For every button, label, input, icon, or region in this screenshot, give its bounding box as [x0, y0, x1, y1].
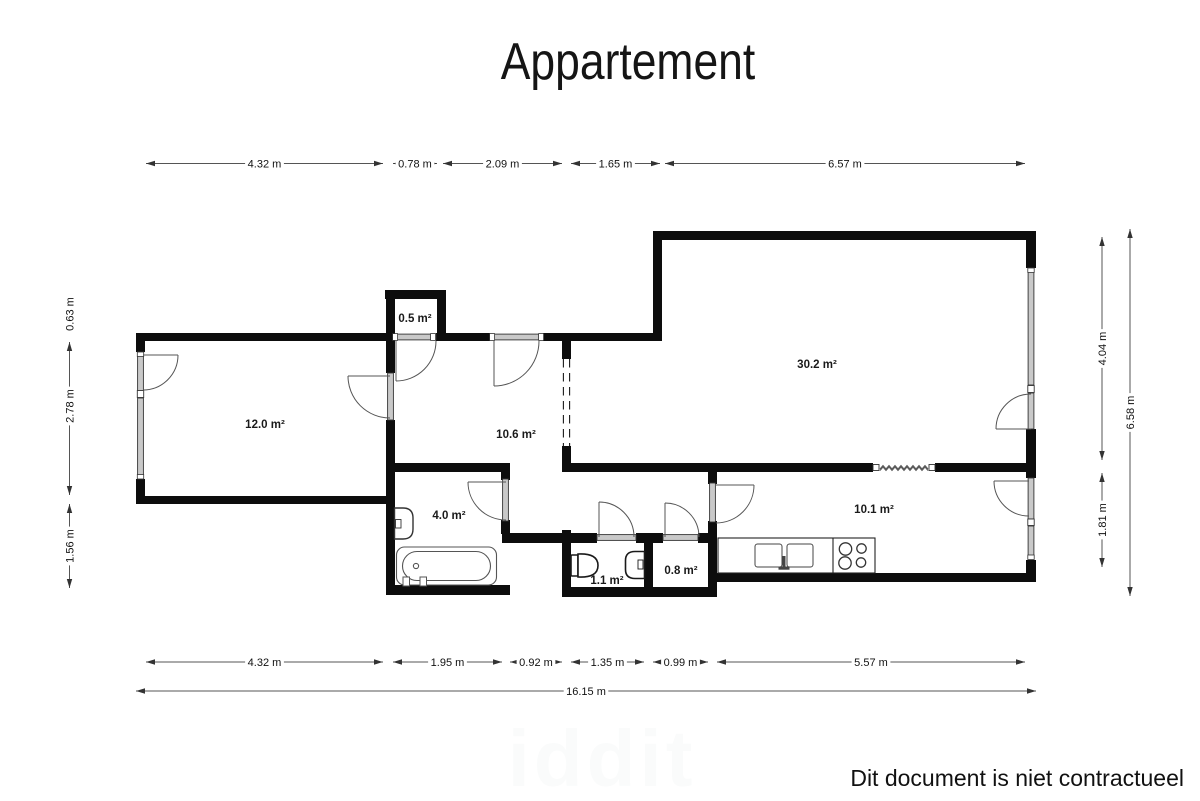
svg-text:Appartement: Appartement — [501, 33, 756, 91]
svg-text:Dit document is niet contractu: Dit document is niet contractueel — [850, 765, 1184, 791]
svg-text:16.15 m: 16.15 m — [566, 686, 606, 698]
svg-text:2.78 m: 2.78 m — [65, 389, 77, 423]
svg-text:0.99 m: 0.99 m — [664, 657, 698, 669]
svg-text:0.63 m: 0.63 m — [65, 297, 77, 331]
svg-text:2.09 m: 2.09 m — [486, 159, 520, 171]
svg-text:12.0 m²: 12.0 m² — [245, 419, 285, 431]
svg-text:0.92 m: 0.92 m — [519, 657, 553, 669]
svg-text:0.8 m²: 0.8 m² — [664, 565, 697, 577]
svg-text:1.56 m: 1.56 m — [65, 529, 77, 563]
svg-text:30.2 m²: 30.2 m² — [797, 359, 837, 371]
svg-text:0.5 m²: 0.5 m² — [398, 313, 431, 325]
svg-text:iddit: iddit — [508, 714, 697, 801]
svg-text:4.32 m: 4.32 m — [248, 159, 282, 171]
svg-text:1.95 m: 1.95 m — [431, 657, 465, 669]
svg-text:6.57 m: 6.57 m — [828, 159, 862, 171]
svg-text:1.35 m: 1.35 m — [591, 657, 625, 669]
svg-text:5.57 m: 5.57 m — [854, 657, 888, 669]
svg-text:10.6 m²: 10.6 m² — [496, 429, 536, 441]
svg-text:1.1 m²: 1.1 m² — [590, 575, 623, 587]
svg-text:0.78 m: 0.78 m — [398, 159, 432, 171]
svg-text:1.81 m: 1.81 m — [1097, 503, 1109, 537]
svg-text:4.04 m: 4.04 m — [1097, 332, 1109, 366]
svg-text:1.65 m: 1.65 m — [599, 159, 633, 171]
svg-text:10.1 m²: 10.1 m² — [854, 504, 894, 516]
svg-text:6.58 m: 6.58 m — [1125, 396, 1137, 430]
svg-text:4.32 m: 4.32 m — [248, 657, 282, 669]
svg-text:4.0 m²: 4.0 m² — [432, 510, 465, 522]
